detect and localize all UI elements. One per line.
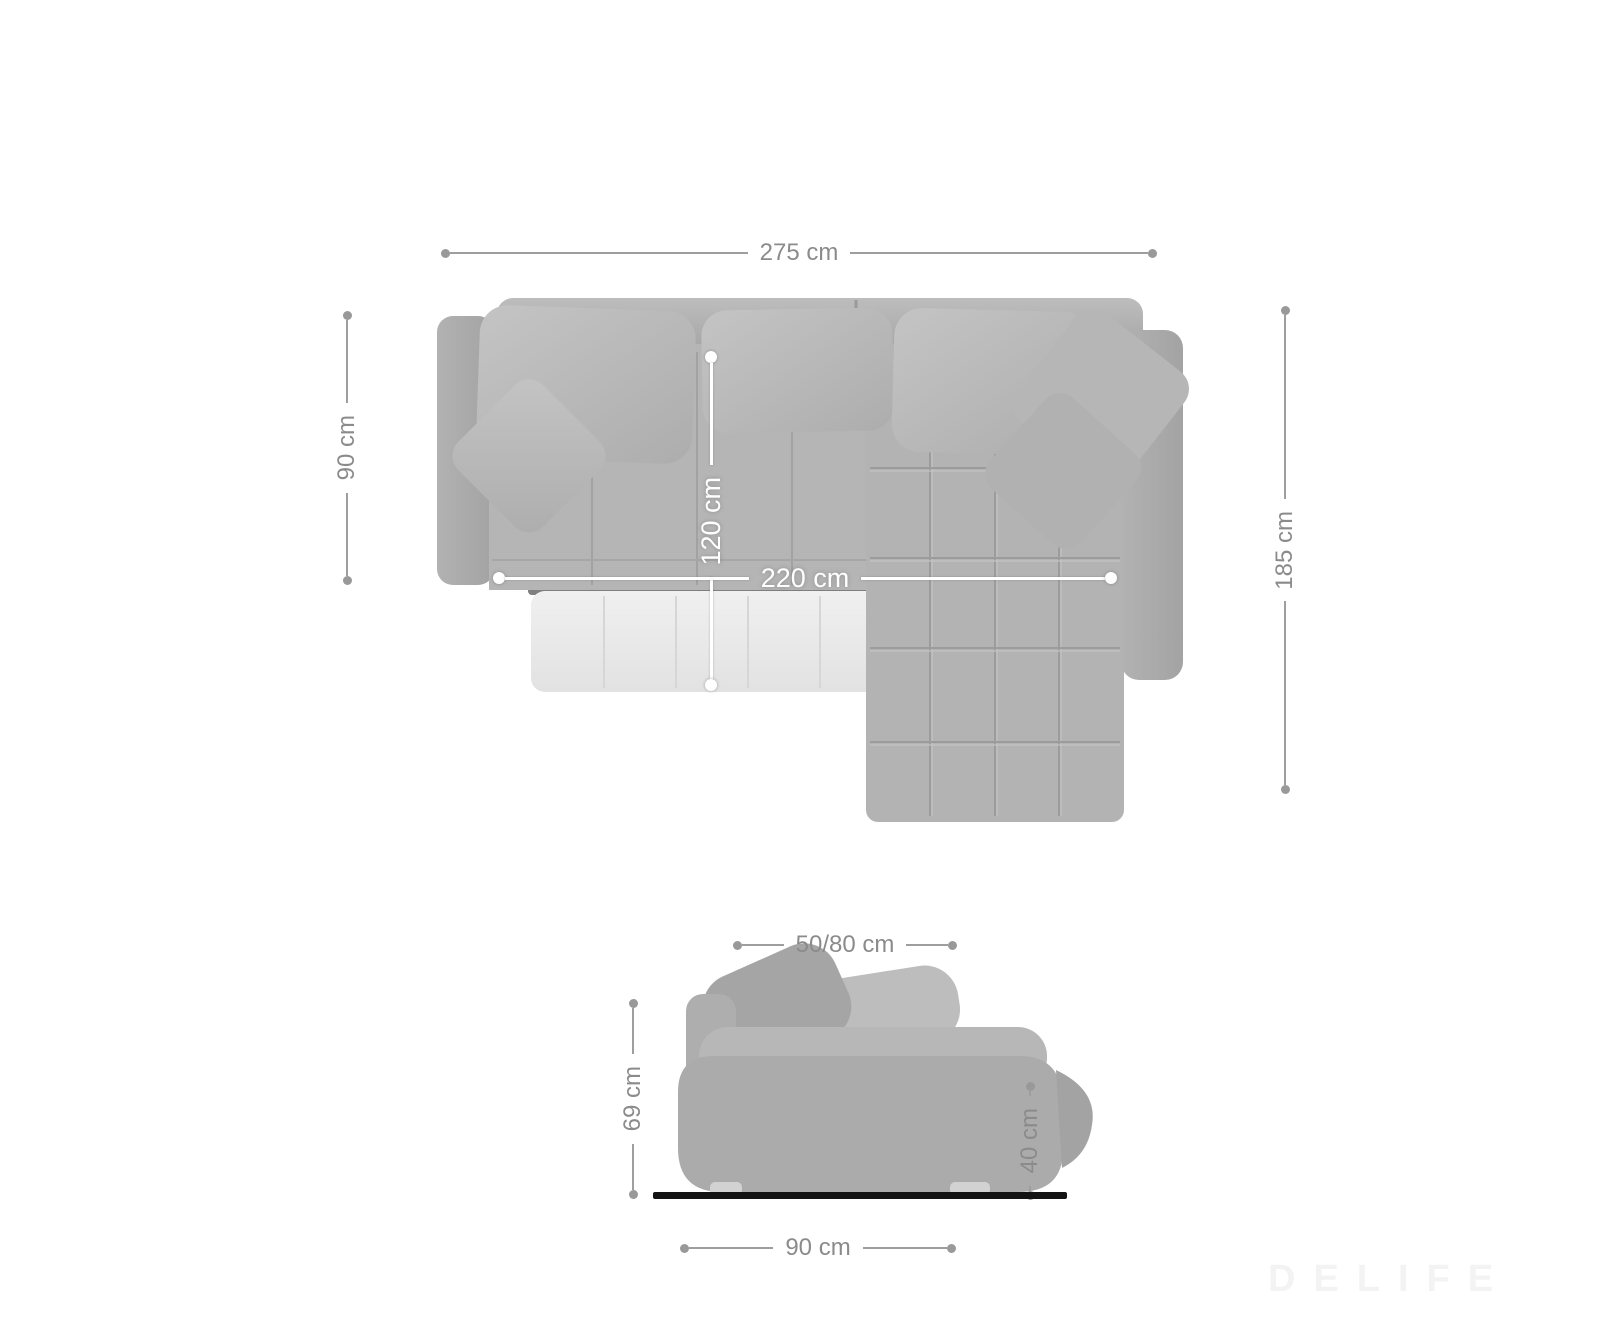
dim-line-segment bbox=[346, 493, 348, 576]
dim-seat-height: 40 cm bbox=[1018, 1082, 1042, 1200]
dim-bed-length: 220 cm bbox=[493, 564, 1117, 592]
dim-label-total-width: 275 cm bbox=[748, 241, 851, 265]
dim-line-segment bbox=[710, 577, 713, 679]
dim-total-depth-right: 185 cm bbox=[1273, 306, 1297, 794]
dim-line-segment bbox=[710, 363, 713, 465]
dim-endpoint-dot bbox=[1105, 572, 1117, 584]
dim-endpoint-dot bbox=[1281, 306, 1290, 315]
dim-label-total-height: 69 cm bbox=[621, 1054, 645, 1143]
dim-side-depth: 90 cm bbox=[680, 1236, 956, 1260]
delife-watermark: DELIFE bbox=[1268, 1258, 1511, 1301]
dim-total-width: 275 cm bbox=[441, 241, 1157, 265]
dim-endpoint-dot bbox=[948, 941, 957, 950]
dim-endpoint-dot bbox=[705, 351, 717, 363]
dim-endpoint-dot bbox=[947, 1244, 956, 1253]
side-view-body bbox=[678, 1056, 1063, 1192]
dim-line-segment bbox=[861, 577, 1105, 580]
dim-line-segment bbox=[1284, 601, 1286, 785]
dim-bed-width: 120 cm bbox=[697, 351, 725, 691]
dim-label-seat-height: 40 cm bbox=[1018, 1096, 1042, 1185]
dim-endpoint-dot bbox=[680, 1244, 689, 1253]
dim-endpoint-dot bbox=[441, 249, 450, 258]
dim-endpoint-dot bbox=[1026, 1082, 1035, 1091]
dim-line-segment bbox=[450, 252, 748, 254]
dim-label-bed-width: 120 cm bbox=[698, 465, 725, 578]
dim-line-segment bbox=[906, 944, 948, 946]
dim-endpoint-dot bbox=[493, 572, 505, 584]
side-view-front-bump bbox=[1056, 1070, 1093, 1168]
dim-label-side-depth: 90 cm bbox=[773, 1236, 862, 1260]
dim-backrest-depth: 50/80 cm bbox=[733, 933, 957, 957]
dim-endpoint-dot bbox=[1281, 785, 1290, 794]
dim-line-segment bbox=[689, 1247, 773, 1249]
dim-line-segment bbox=[850, 252, 1148, 254]
dim-endpoint-dot bbox=[733, 941, 742, 950]
dim-line-segment bbox=[863, 1247, 947, 1249]
dim-label-total-depth: 185 cm bbox=[1273, 499, 1297, 602]
dim-endpoint-dot bbox=[629, 999, 638, 1008]
dim-label-bed-length: 220 cm bbox=[749, 565, 862, 592]
product-dimension-figure: 275 cm 90 cm 185 cm 120 cm 220 cm 50/80 … bbox=[0, 0, 1600, 1333]
dim-endpoint-dot bbox=[705, 679, 717, 691]
dim-total-height: 69 cm bbox=[621, 999, 645, 1199]
dim-label-backrest-depth: 50/80 cm bbox=[784, 933, 907, 957]
dim-line-segment bbox=[632, 1008, 634, 1054]
dim-endpoint-dot bbox=[343, 576, 352, 585]
dim-line-segment bbox=[742, 944, 784, 946]
dim-endpoint-dot bbox=[343, 311, 352, 320]
dim-endpoint-dot bbox=[629, 1190, 638, 1199]
dim-line-segment bbox=[1284, 315, 1286, 499]
dim-line-segment bbox=[505, 577, 749, 580]
dim-line-segment bbox=[632, 1144, 634, 1190]
dim-line-segment bbox=[346, 320, 348, 403]
floor-line bbox=[653, 1192, 1067, 1199]
dim-seat-depth-left: 90 cm bbox=[335, 311, 359, 585]
sofa-side-view-illustration bbox=[0, 0, 1600, 1333]
dim-label-seat-depth: 90 cm bbox=[335, 403, 359, 492]
dim-endpoint-dot bbox=[1148, 249, 1157, 258]
